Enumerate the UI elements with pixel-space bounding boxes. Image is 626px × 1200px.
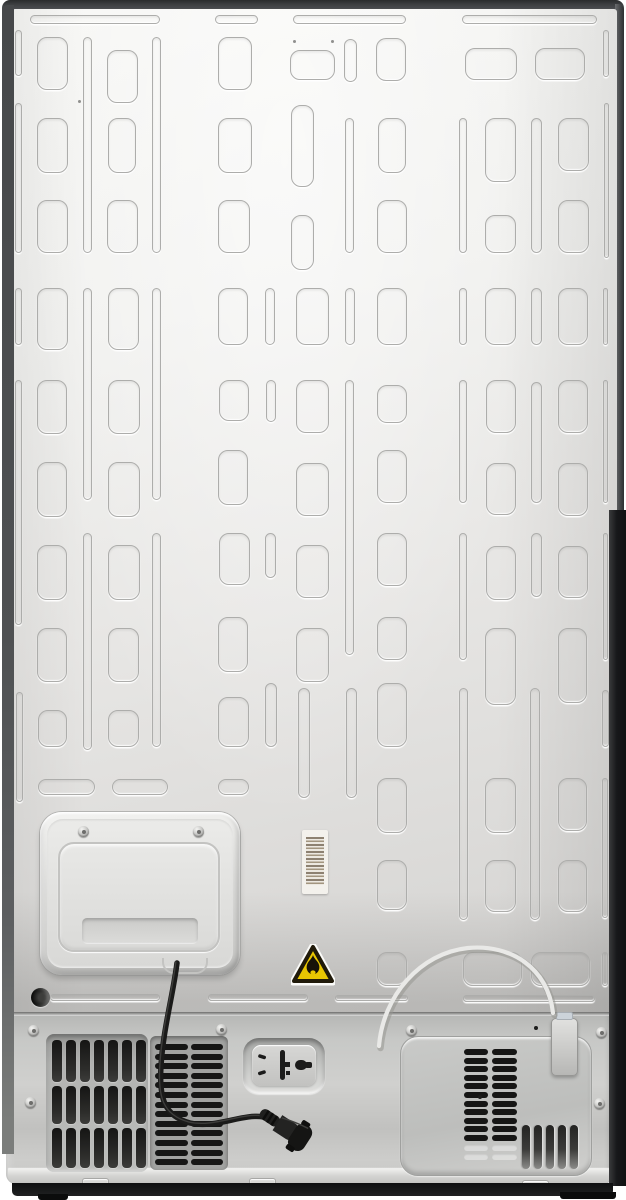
embossed-groove <box>486 463 516 515</box>
embossed-groove <box>377 778 407 833</box>
embossed-groove <box>218 118 252 173</box>
screw <box>594 1098 605 1109</box>
embossed-groove <box>377 617 407 660</box>
embossed-groove <box>603 533 608 660</box>
embossed-groove <box>602 952 608 986</box>
embossed-groove <box>558 200 589 253</box>
embossed-groove <box>208 994 308 1001</box>
embossed-groove <box>296 463 329 516</box>
embossed-groove <box>486 546 516 600</box>
panel-spot <box>331 40 334 43</box>
embossed-groove <box>83 37 92 253</box>
embossed-groove <box>37 462 67 517</box>
embossed-groove <box>218 779 249 795</box>
embossed-groove <box>218 288 248 345</box>
embossed-groove <box>107 50 138 103</box>
embossed-groove <box>290 50 335 80</box>
embossed-groove <box>296 628 329 682</box>
embossed-groove <box>485 288 516 345</box>
embossed-groove <box>37 380 67 434</box>
embossed-groove <box>108 380 140 434</box>
embossed-groove <box>346 688 357 798</box>
cabinet-right-lower-edge <box>609 510 626 1186</box>
embossed-groove <box>531 118 542 253</box>
embossed-groove <box>112 779 168 795</box>
embossed-groove <box>16 692 23 802</box>
flammable-warning-icon <box>291 944 335 986</box>
embossed-groove <box>296 288 329 345</box>
embossed-groove <box>558 380 588 433</box>
embossed-groove <box>291 215 314 270</box>
embossed-groove <box>465 48 517 80</box>
embossed-groove <box>219 533 250 585</box>
embossed-groove <box>462 15 597 24</box>
embossed-groove <box>107 200 138 253</box>
right-foot <box>560 1192 616 1199</box>
embossed-groove <box>378 118 406 173</box>
screw <box>25 1097 36 1108</box>
embossed-groove <box>108 118 136 173</box>
embossed-groove <box>377 683 407 747</box>
panel-spot <box>293 40 296 43</box>
embossed-groove <box>152 533 161 747</box>
compartment-screws <box>6 1012 613 1184</box>
screw <box>28 1025 39 1036</box>
embossed-groove <box>558 628 587 703</box>
barcode-stripes <box>306 837 324 885</box>
embossed-groove <box>530 688 540 920</box>
embossed-groove <box>377 860 407 910</box>
embossed-groove <box>108 288 139 350</box>
base-strip <box>12 1183 613 1196</box>
embossed-groove <box>377 200 407 253</box>
embossed-groove <box>459 533 467 660</box>
embossed-groove <box>603 288 608 345</box>
embossed-groove <box>485 860 516 912</box>
embossed-groove <box>265 288 275 345</box>
embossed-groove <box>37 545 67 600</box>
embossed-groove <box>345 380 354 655</box>
embossed-groove <box>602 690 609 747</box>
embossed-groove <box>296 380 329 433</box>
embossed-groove <box>558 778 587 831</box>
embossed-groove <box>535 48 585 80</box>
embossed-groove <box>218 617 248 672</box>
embossed-groove <box>83 288 92 500</box>
screw <box>216 1024 227 1035</box>
embossed-groove <box>377 533 407 586</box>
embossed-groove <box>296 545 329 598</box>
embossed-groove <box>298 688 310 798</box>
embossed-groove <box>485 778 516 833</box>
embossed-groove <box>558 118 589 171</box>
screw <box>596 1027 607 1038</box>
embossed-groove <box>215 15 258 24</box>
embossed-groove <box>291 105 314 187</box>
embossed-groove <box>603 380 608 503</box>
embossed-groove <box>377 450 407 503</box>
embossed-groove <box>218 200 250 253</box>
screw <box>406 1025 417 1036</box>
embossed-groove <box>15 103 22 253</box>
embossed-groove <box>558 546 588 598</box>
embossed-groove <box>376 38 406 81</box>
embossed-groove <box>108 462 140 517</box>
embossed-groove <box>558 463 588 516</box>
left-foot <box>38 1194 68 1200</box>
embossed-groove <box>15 30 22 76</box>
screw <box>78 826 89 837</box>
pin-dot <box>478 1095 482 1099</box>
embossed-groove <box>602 778 608 918</box>
embossed-groove <box>377 288 407 345</box>
embossed-groove <box>293 15 406 24</box>
embossed-groove <box>108 545 140 600</box>
drain-hole <box>31 988 50 1007</box>
embossed-groove <box>30 15 160 24</box>
embossed-groove <box>486 380 516 433</box>
embossed-groove <box>152 37 161 253</box>
barcode-label <box>302 830 328 894</box>
embossed-groove <box>604 103 609 258</box>
embossed-groove <box>218 37 252 90</box>
embossed-groove <box>38 779 95 795</box>
refrigerator-rear-photo <box>0 0 626 1200</box>
embossed-groove <box>603 30 609 77</box>
embossed-groove <box>37 200 68 253</box>
embossed-groove <box>218 697 249 747</box>
embossed-groove <box>219 380 249 421</box>
embossed-groove <box>459 688 468 920</box>
embossed-groove <box>265 683 277 747</box>
embossed-groove <box>463 995 595 1002</box>
embossed-groove <box>108 628 139 682</box>
screw <box>193 826 204 837</box>
embossed-groove <box>37 37 68 90</box>
cabinet-left-edge <box>2 5 14 1154</box>
embossed-groove <box>152 288 161 500</box>
access-panel-screws <box>40 812 240 975</box>
embossed-groove <box>531 952 590 986</box>
embossed-groove <box>531 533 542 597</box>
embossed-groove <box>377 385 407 423</box>
embossed-groove <box>485 628 516 705</box>
embossed-groove <box>37 118 68 173</box>
embossed-groove <box>218 450 248 505</box>
embossed-groove <box>463 952 522 986</box>
embossed-groove <box>37 628 67 682</box>
pin-dot <box>534 1026 538 1030</box>
panel-spot <box>78 100 81 103</box>
embossed-groove <box>50 994 160 1001</box>
embossed-groove <box>459 118 467 253</box>
embossed-groove <box>531 288 542 345</box>
embossed-groove <box>265 533 276 578</box>
embossed-groove <box>459 288 467 345</box>
embossed-groove <box>266 380 276 422</box>
embossed-groove <box>344 39 357 82</box>
access-panel <box>40 812 240 975</box>
embossed-groove <box>558 288 588 345</box>
embossed-groove <box>335 995 408 1001</box>
embossed-groove <box>485 215 516 253</box>
embossed-groove <box>459 380 467 503</box>
compressor-compartment <box>6 1012 613 1184</box>
embossed-groove <box>345 288 355 345</box>
embossed-groove <box>108 710 139 747</box>
embossed-groove <box>485 118 516 182</box>
embossed-groove <box>15 380 22 625</box>
embossed-groove <box>558 860 587 912</box>
embossed-groove <box>38 710 67 747</box>
embossed-groove <box>345 118 354 253</box>
embossed-groove <box>37 288 68 350</box>
embossed-groove <box>83 533 92 750</box>
embossed-groove <box>531 382 542 503</box>
embossed-groove <box>15 288 22 345</box>
embossed-groove <box>377 952 407 986</box>
